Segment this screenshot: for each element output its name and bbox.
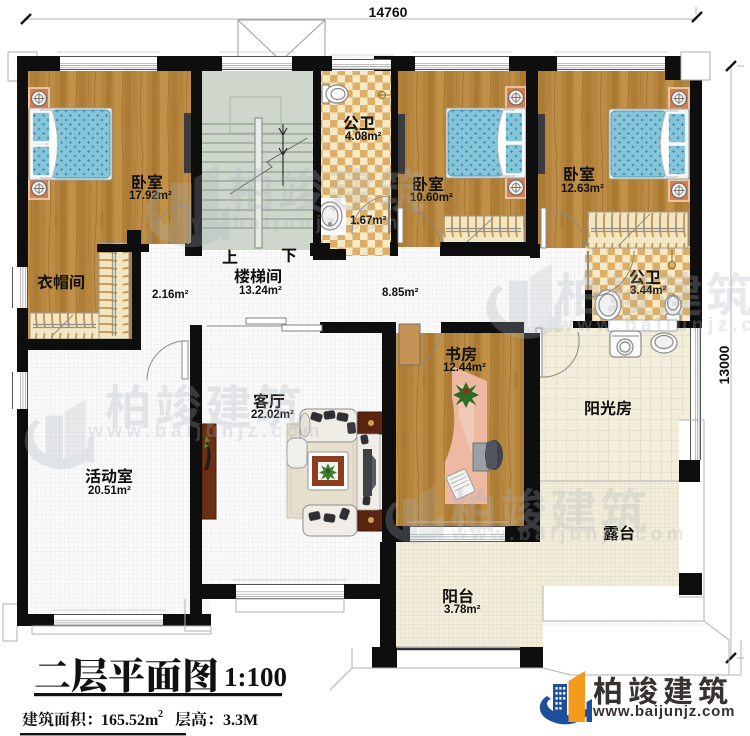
svg-text:13.24m²: 13.24m²: [239, 285, 282, 297]
svg-text:13000: 13000: [716, 345, 732, 384]
svg-text:www.baijunjz.com: www.baijunjz.com: [451, 524, 688, 545]
svg-text:165.52m: 165.52m: [101, 712, 159, 729]
svg-text:3.78m²: 3.78m²: [444, 604, 481, 616]
svg-text:20.51m²: 20.51m²: [88, 485, 131, 497]
svg-text:www.baijunjz.com: www.baijunjz.com: [165, 213, 402, 234]
svg-text:www.baijunjz.com: www.baijunjz.com: [592, 703, 735, 720]
svg-text:12.63m²: 12.63m²: [561, 183, 604, 195]
svg-text:2.16m²: 2.16m²: [152, 289, 189, 301]
svg-text:3.3M: 3.3M: [223, 712, 258, 729]
svg-text:2: 2: [158, 709, 163, 720]
svg-text:www.baijunjz.com: www.baijunjz.com: [87, 421, 324, 442]
svg-text:14760: 14760: [369, 4, 408, 20]
svg-text:4.08m²: 4.08m²: [345, 131, 382, 143]
svg-text:www.baijunjz.com: www.baijunjz.com: [557, 315, 750, 336]
svg-text:12.44m²: 12.44m²: [443, 362, 486, 374]
svg-text:8.85m²: 8.85m²: [382, 287, 419, 299]
svg-text:1:100: 1:100: [224, 662, 287, 692]
